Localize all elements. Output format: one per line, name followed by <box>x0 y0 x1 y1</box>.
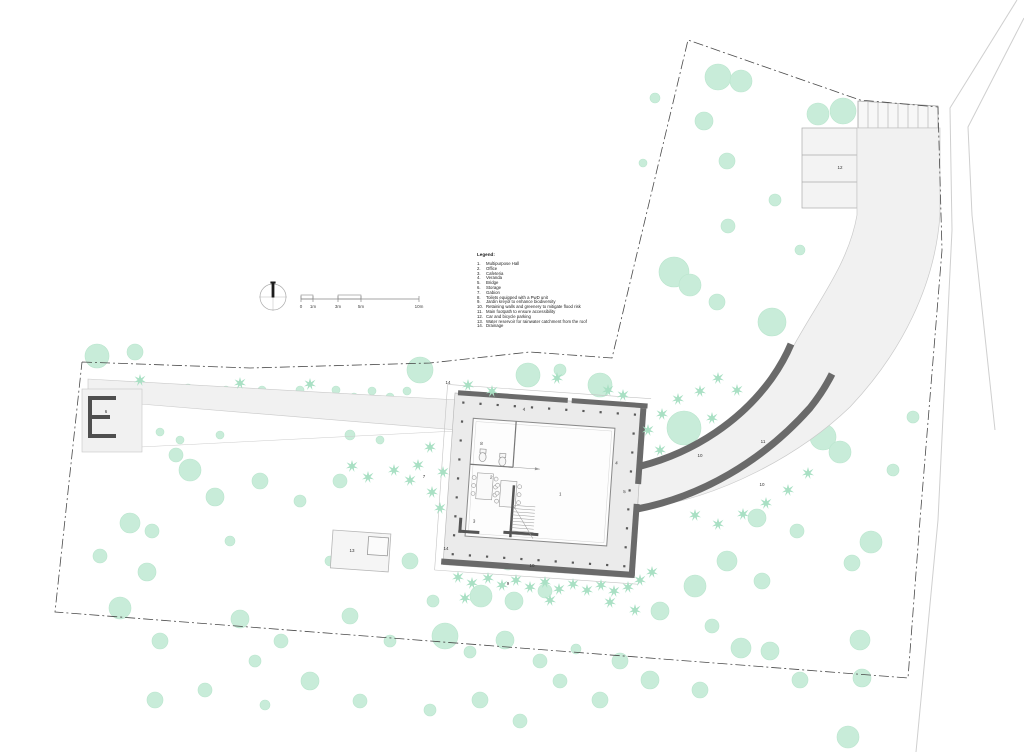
star-plant-icon <box>712 372 724 384</box>
plan-label: 10 <box>759 482 765 487</box>
tree <box>472 692 488 708</box>
main-building: 8231445 <box>435 384 651 584</box>
plan-label: 10 <box>529 563 535 568</box>
site-plan-drawing: 8231445 01m3m5m10m 6791010101112131414 <box>0 0 1024 752</box>
star-plant-icon <box>617 389 629 401</box>
star-plant-icon <box>595 579 607 591</box>
tree <box>384 635 396 647</box>
tree <box>85 344 109 368</box>
tree <box>294 495 306 507</box>
tree <box>554 364 566 376</box>
tree <box>513 714 527 728</box>
tree <box>844 555 860 571</box>
tree <box>432 623 458 649</box>
tree <box>695 112 713 130</box>
tree <box>333 474 347 488</box>
star-plant-icon <box>412 459 424 471</box>
tree <box>169 448 183 462</box>
star-plant-icon <box>452 571 464 583</box>
tree <box>639 159 647 167</box>
star-plant-icon <box>459 592 471 604</box>
star-plant-icon <box>737 508 749 520</box>
scale-label: 5m <box>358 304 365 309</box>
star-plant-icon <box>424 441 436 453</box>
plan-label: 13 <box>349 548 355 553</box>
star-plant-icon <box>362 471 374 483</box>
star-plant-icon <box>656 408 668 420</box>
tree <box>850 630 870 650</box>
star-plant-icon <box>426 486 438 498</box>
tree <box>758 308 786 336</box>
tree <box>470 585 492 607</box>
tree <box>829 441 851 463</box>
scale-label: 1m <box>310 304 317 309</box>
plan-label: 10 <box>697 453 703 458</box>
star-plant-icon <box>404 474 416 486</box>
left-footpath <box>88 379 458 447</box>
tree <box>887 464 899 476</box>
tree <box>533 654 547 668</box>
tree <box>127 344 143 360</box>
plan-label: 7 <box>423 474 426 479</box>
legend-items: 1.Multipurpose Hall2.Office3.Cafeteria4.… <box>477 262 627 329</box>
star-plant-icon <box>434 502 446 514</box>
tree <box>274 634 288 648</box>
legend: Legend: 1.Multipurpose Hall2.Office3.Caf… <box>477 252 627 329</box>
legend-item: 14.Drainage <box>477 324 627 329</box>
tree <box>860 531 882 553</box>
plan-label: 11 <box>761 439 766 444</box>
tree <box>249 655 261 667</box>
tree <box>719 153 735 169</box>
tree <box>260 700 270 710</box>
tree <box>705 64 731 90</box>
tree <box>403 387 411 395</box>
tree <box>301 672 319 690</box>
star-plant-icon <box>622 581 634 593</box>
star-plant-icon <box>802 467 814 479</box>
tree <box>692 682 708 698</box>
legend-title: Legend: <box>477 252 627 258</box>
tree <box>730 70 752 92</box>
sheet-canvas: 8231445 01m3m5m10m 6791010101112131414 L… <box>0 0 1024 752</box>
star-plant-icon <box>672 393 684 405</box>
tree <box>592 692 608 708</box>
star-plant-icon <box>604 596 616 608</box>
tree <box>376 436 384 444</box>
star-plant-icon <box>694 385 706 397</box>
tree <box>795 245 805 255</box>
tree <box>516 363 540 387</box>
tree <box>588 373 612 397</box>
tree <box>109 597 131 619</box>
tree <box>93 549 107 563</box>
tree <box>198 683 212 697</box>
tree <box>830 98 856 124</box>
star-plant-icon <box>731 384 743 396</box>
star-plant-icon <box>553 583 565 595</box>
star-plant-icon <box>608 585 620 597</box>
tree <box>179 459 201 481</box>
tree <box>505 592 523 610</box>
tree <box>790 524 804 538</box>
tree <box>353 694 367 708</box>
tree <box>667 411 701 445</box>
tree <box>761 642 779 660</box>
tree <box>651 602 669 620</box>
tree <box>252 473 268 489</box>
star-plant-icon <box>437 466 449 478</box>
storage-structure <box>82 389 142 452</box>
tree <box>769 194 781 206</box>
tree <box>709 294 725 310</box>
star-plant-icon <box>462 379 474 391</box>
tree <box>792 672 808 688</box>
star-plant-icon <box>524 581 536 593</box>
tree <box>748 509 766 527</box>
tree <box>225 536 235 546</box>
tree <box>754 573 770 589</box>
star-plant-icon <box>629 604 641 616</box>
tree <box>853 669 871 687</box>
star-plant-icon <box>706 412 718 424</box>
star-plant-icon <box>689 509 701 521</box>
scale-bar: 01m3m5m10m <box>300 295 424 309</box>
star-plant-icon <box>646 566 658 578</box>
tree <box>807 103 829 125</box>
water-reservoir <box>330 530 391 572</box>
tree <box>216 431 224 439</box>
north-arrow <box>259 282 287 312</box>
tree <box>679 274 701 296</box>
star-plant-icon <box>388 464 400 476</box>
tree <box>206 488 224 506</box>
plan-label: 9 <box>507 581 510 586</box>
plan-label: 14 <box>443 546 449 551</box>
tree <box>721 219 735 233</box>
tree <box>650 93 660 103</box>
star-plant-icon <box>581 584 593 596</box>
tree <box>138 563 156 581</box>
tree <box>717 551 737 571</box>
star-plant-icon <box>712 518 724 530</box>
tree <box>156 428 164 436</box>
tree <box>407 357 433 383</box>
plan-label: 14 <box>445 380 451 385</box>
tree <box>731 638 751 658</box>
tree <box>120 513 140 533</box>
tree <box>464 646 476 658</box>
star-plant-icon <box>304 378 316 390</box>
scale-label: 3m <box>335 304 342 309</box>
scale-label: 10m <box>415 304 424 309</box>
legend-item-text: Drainage <box>486 324 627 329</box>
tree <box>424 704 436 716</box>
tree <box>402 553 418 569</box>
tree <box>147 692 163 708</box>
tree <box>145 524 159 538</box>
star-plant-icon <box>782 484 794 496</box>
tree <box>684 575 706 597</box>
tree <box>176 436 184 444</box>
tree <box>342 608 358 624</box>
tree <box>427 595 439 607</box>
tree <box>837 726 859 748</box>
tree <box>553 674 567 688</box>
legend-item-number: 14. <box>477 324 486 329</box>
tree <box>907 411 919 423</box>
tree <box>231 610 249 628</box>
tree <box>345 430 355 440</box>
tree <box>368 387 376 395</box>
tree <box>705 619 719 633</box>
star-plant-icon <box>346 460 358 472</box>
tree <box>152 633 168 649</box>
plan-label: 12 <box>837 165 843 170</box>
star-plant-icon <box>654 444 666 456</box>
star-plant-icon <box>760 497 772 509</box>
tree <box>641 671 659 689</box>
scale-label: 0 <box>300 304 303 309</box>
